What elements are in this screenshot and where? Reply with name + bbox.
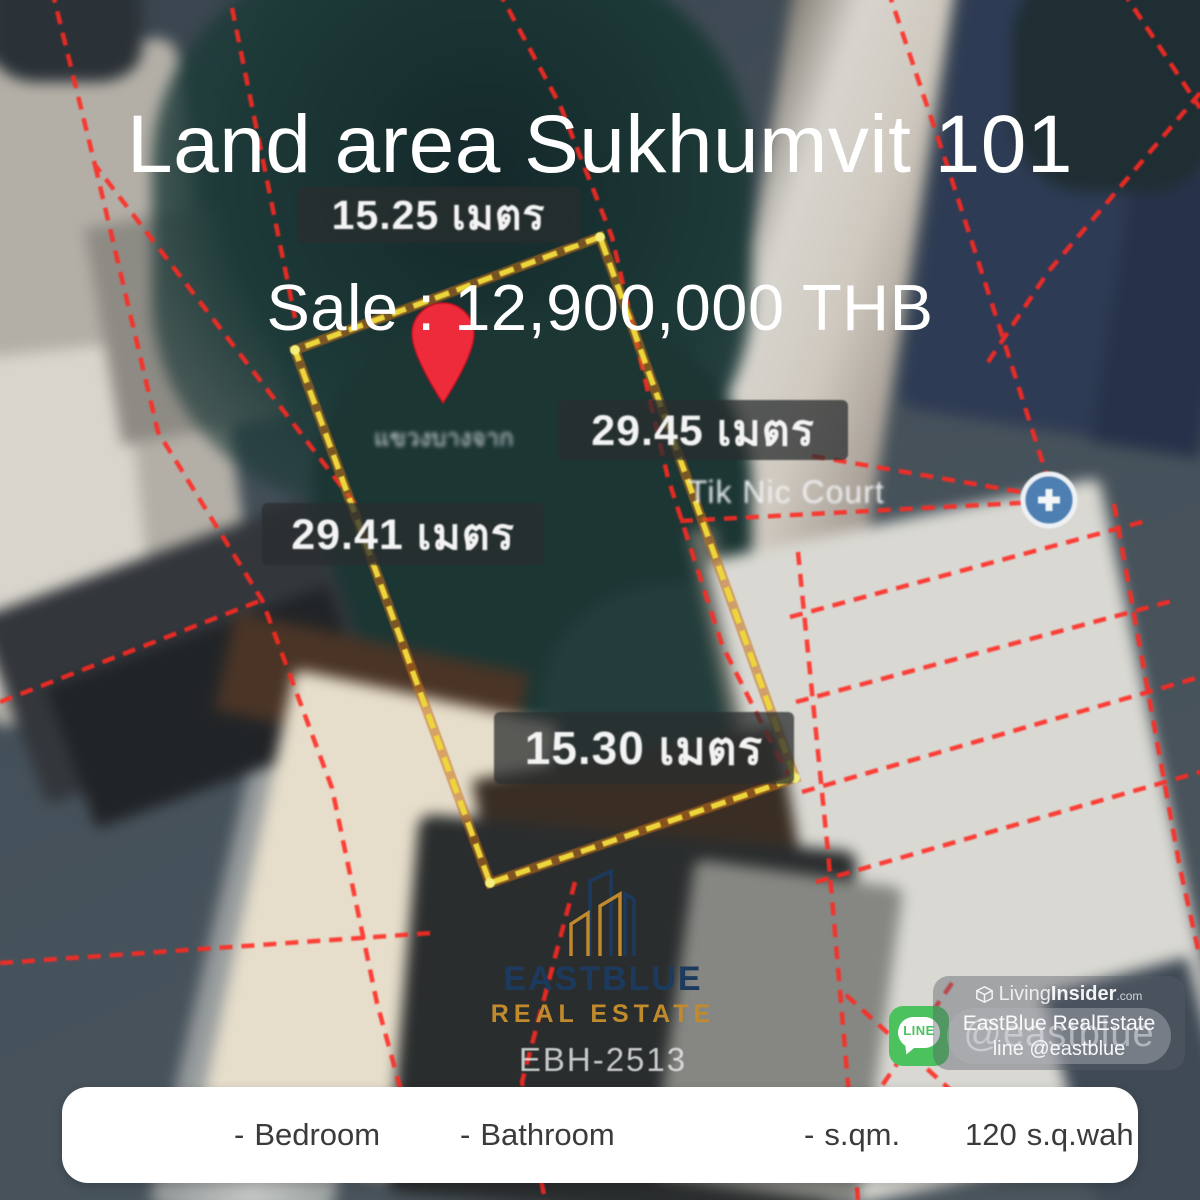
measurement-top: 15.25 เมตร [297,187,580,243]
measurement-bottom: 15.30 เมตร [494,712,794,784]
agency-logo-block: EASTBLUE REAL ESTATE EBH-2513 [470,866,736,1079]
agency-name: EASTBLUE [470,960,736,999]
sqm-value: - [804,1117,814,1153]
place-plus-icon [1023,474,1075,526]
sqwah-label: s.q.wah [1027,1117,1134,1153]
bathroom-value: - [460,1117,470,1153]
platform-name-bold: Insider [1051,983,1117,1005]
agent-contact-pill: @eastblue EastBlue RealEstate line @east… [947,1008,1171,1064]
platform-tld: .com [1116,989,1142,1003]
livinginsider-cube-icon [976,986,993,1003]
sqm-label: s.qm. [824,1117,900,1153]
property-details-bar: - Bedroom - Bathroom - s.qm. 120 s.q.wah [62,1087,1138,1183]
measurement-right: 29.45 เมตร [558,400,848,460]
bathroom-label: Bathroom [480,1117,614,1153]
listing-code: EBH-2513 [470,1041,736,1079]
agent-name: EastBlue RealEstate [947,1012,1171,1036]
detail-sqm: - s.qm. [804,1087,900,1183]
platform-logo: LivingInsider.com [933,983,1185,1006]
detail-sqwah: 120 s.q.wah [965,1087,1134,1183]
page-title: Land area Sukhumvit 101 [0,98,1200,192]
measurement-left: 29.41 เมตร [262,503,544,565]
agent-line-contact: line @eastblue [947,1038,1171,1061]
platform-name-light: Living [999,983,1051,1005]
price-text: Sale : 12,900,000 THB [0,270,1200,345]
bedroom-label: Bedroom [254,1117,380,1153]
agency-buildings-icon [560,866,646,958]
sqwah-value: 120 [965,1117,1017,1153]
listing-image: 15.25 เมตร 29.45 เมตร 29.41 เมตร 15.30 เ… [0,0,1200,1200]
detail-bathroom: - Bathroom [460,1087,615,1183]
plot-vertex [595,232,605,242]
place-label: Tik Nic Court [688,474,885,511]
bedroom-value: - [234,1117,244,1153]
plot-vertex [290,345,300,355]
detail-bedroom: - Bedroom [234,1087,380,1183]
platform-watermark: LivingInsider.com @eastblue EastBlue Rea… [933,976,1185,1070]
agency-subtitle: REAL ESTATE [470,1000,736,1029]
line-bubble-tail [902,1042,917,1056]
street-label: แขวงบางจาก [374,418,514,457]
